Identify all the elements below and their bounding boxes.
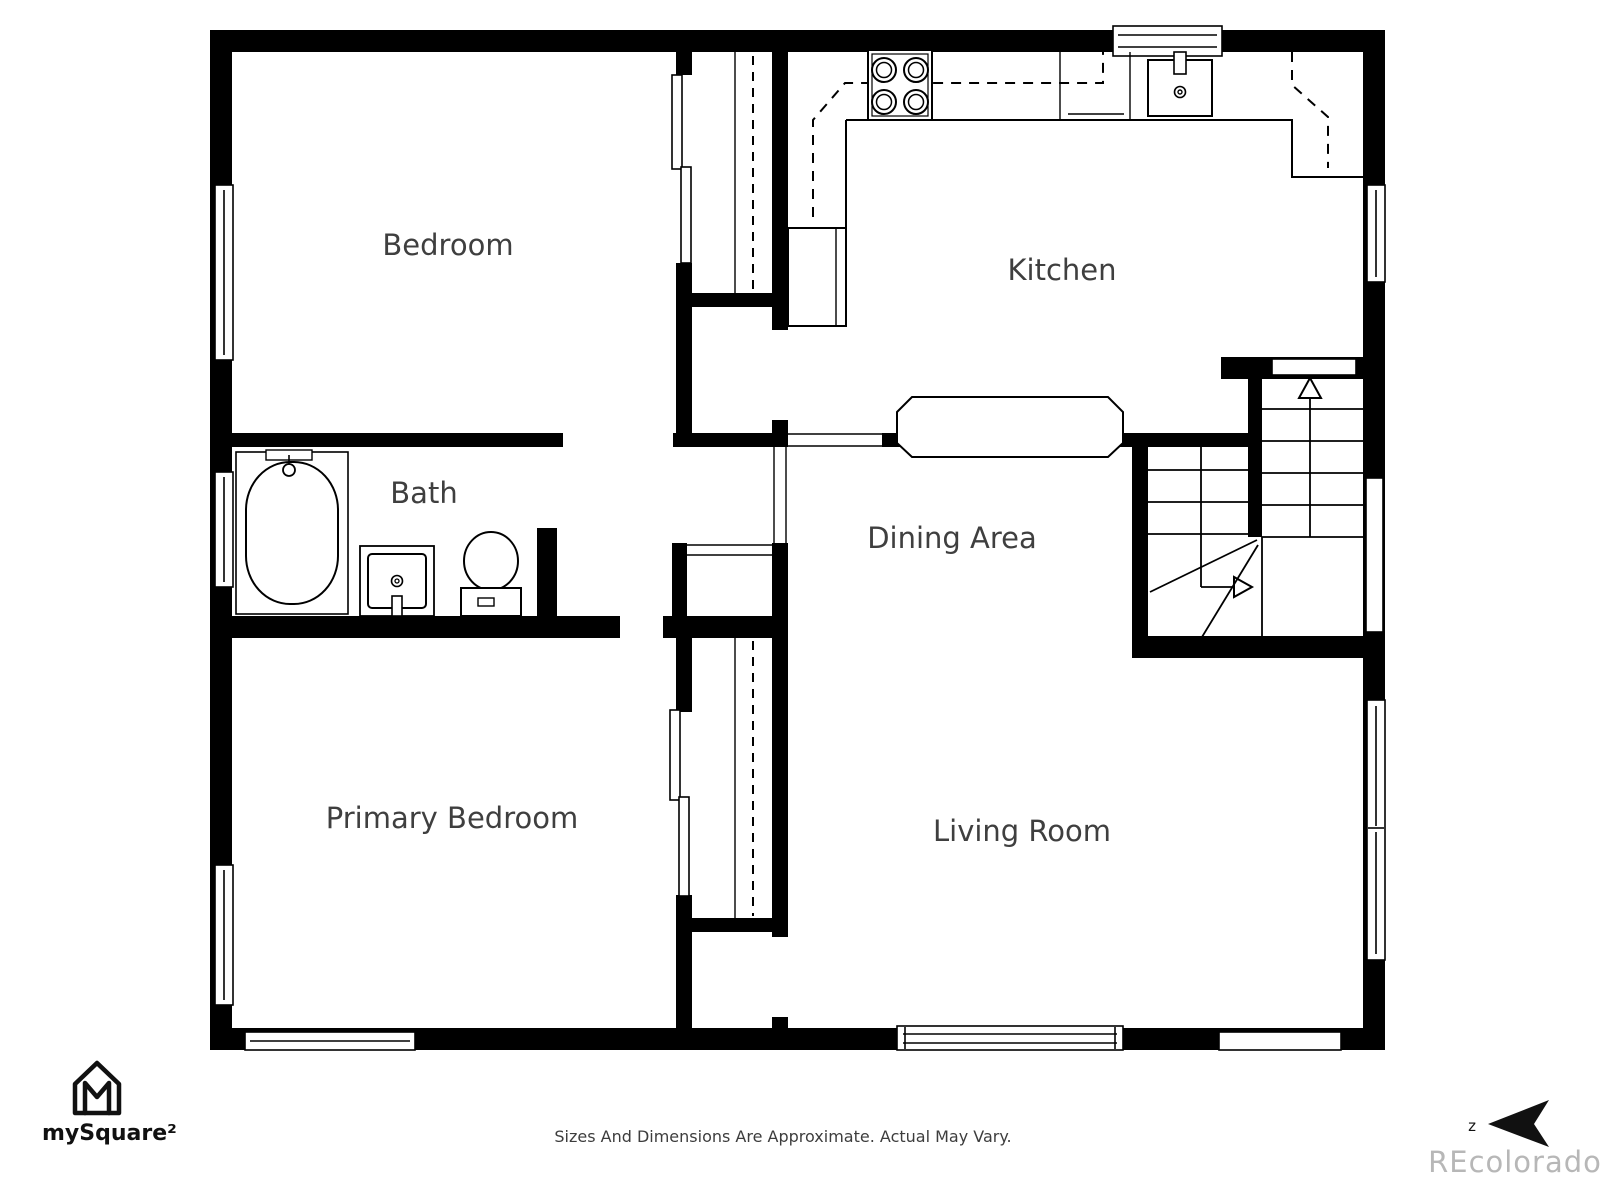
breakfast-bar bbox=[897, 397, 1123, 457]
bath-fixtures bbox=[236, 450, 521, 616]
watermark-text: REcolorado bbox=[1428, 1145, 1600, 1179]
wall-bedroom-closet-bottom bbox=[692, 293, 772, 307]
floor-plan-drawing: Bedroom Kitchen Bath Dining Area Primary… bbox=[0, 0, 1600, 1200]
wall-primary-top-right bbox=[663, 616, 787, 638]
stairs-up-run bbox=[1262, 378, 1363, 636]
room-label-dining-area: Dining Area bbox=[867, 521, 1037, 555]
wall-stair-upper-left bbox=[1248, 379, 1262, 537]
floor-plan-page: Bedroom Kitchen Bath Dining Area Primary… bbox=[0, 0, 1600, 1200]
logo-m-glyph bbox=[85, 1083, 109, 1113]
refrigerator bbox=[788, 228, 846, 326]
room-label-living-room: Living Room bbox=[933, 814, 1111, 848]
wall-bath-right bbox=[537, 528, 557, 616]
wall-kitchen-left-top bbox=[772, 52, 788, 330]
wall-primary-top-left bbox=[232, 616, 620, 638]
disclaimer-text: Sizes And Dimensions Are Approximate. Ac… bbox=[554, 1127, 1011, 1146]
walls bbox=[210, 30, 1385, 1050]
room-label-bath: Bath bbox=[390, 476, 457, 510]
bedroom-window-left bbox=[215, 185, 233, 360]
room-label-primary-bedroom: Primary Bedroom bbox=[326, 801, 578, 835]
primary-window-left bbox=[215, 865, 233, 1005]
bedroom-closet-sliding-doors bbox=[672, 75, 691, 263]
bath-window-left bbox=[215, 472, 233, 587]
wall-central-stub-top bbox=[676, 52, 692, 75]
brand-logo bbox=[75, 1063, 119, 1113]
room-label-kitchen: Kitchen bbox=[1008, 253, 1117, 287]
living-window-bottom-small bbox=[1219, 1032, 1341, 1050]
wall-closet-right-stub bbox=[772, 1017, 788, 1028]
room-label-bedroom: Bedroom bbox=[382, 228, 513, 262]
room-labels: Bedroom Kitchen Bath Dining Area Primary… bbox=[326, 228, 1117, 848]
wall-kitchen-left-stub bbox=[772, 420, 788, 447]
wall-stair-hall-top bbox=[1110, 433, 1262, 447]
kitchen-counter-edge bbox=[846, 120, 1363, 177]
primary-closet-sliding-doors bbox=[670, 710, 689, 896]
wall-closet-right-long bbox=[772, 638, 788, 937]
stair-break-line-2 bbox=[1202, 545, 1258, 637]
wall-central-mid bbox=[676, 263, 692, 433]
primary-window-bottom bbox=[245, 1032, 415, 1050]
kitchen-window-right bbox=[1367, 185, 1385, 282]
stairs-up-arrow-icon bbox=[1299, 378, 1321, 398]
wall-central-primary-stub bbox=[676, 638, 692, 712]
upper-cabinets-dashed-right bbox=[1292, 52, 1328, 168]
living-window-right bbox=[1367, 700, 1385, 960]
wall-central-bottom bbox=[676, 895, 692, 1028]
bathroom-sink bbox=[360, 546, 434, 616]
kitchen-sink bbox=[1148, 52, 1212, 116]
wall-stair-lower-left bbox=[1132, 447, 1148, 636]
wall-bath-top-left bbox=[232, 433, 563, 447]
brand-logo-text: mySquare² bbox=[42, 1121, 177, 1146]
wall-linen-right bbox=[772, 543, 788, 638]
wall-linen-left bbox=[672, 543, 687, 616]
stair-landing-edge bbox=[1272, 359, 1356, 375]
north-arrow-icon bbox=[1488, 1100, 1549, 1147]
wall-stair-bottom bbox=[1132, 636, 1385, 658]
windows bbox=[215, 26, 1385, 1050]
wall-bath-top-right bbox=[673, 433, 787, 447]
toilet bbox=[461, 532, 521, 616]
logo-house-icon bbox=[75, 1063, 119, 1113]
stove bbox=[868, 50, 932, 120]
bathtub bbox=[236, 450, 348, 614]
north-compass: z bbox=[1468, 1100, 1549, 1147]
stairs-down-run bbox=[1148, 447, 1258, 637]
kitchen-fixtures bbox=[788, 50, 1212, 457]
living-window-bottom-large bbox=[897, 1026, 1123, 1050]
entry-door bbox=[1366, 478, 1383, 632]
kitchen-window-top bbox=[1113, 26, 1222, 56]
north-label: z bbox=[1468, 1117, 1476, 1135]
wall-primary-closet-bottom bbox=[692, 918, 772, 932]
